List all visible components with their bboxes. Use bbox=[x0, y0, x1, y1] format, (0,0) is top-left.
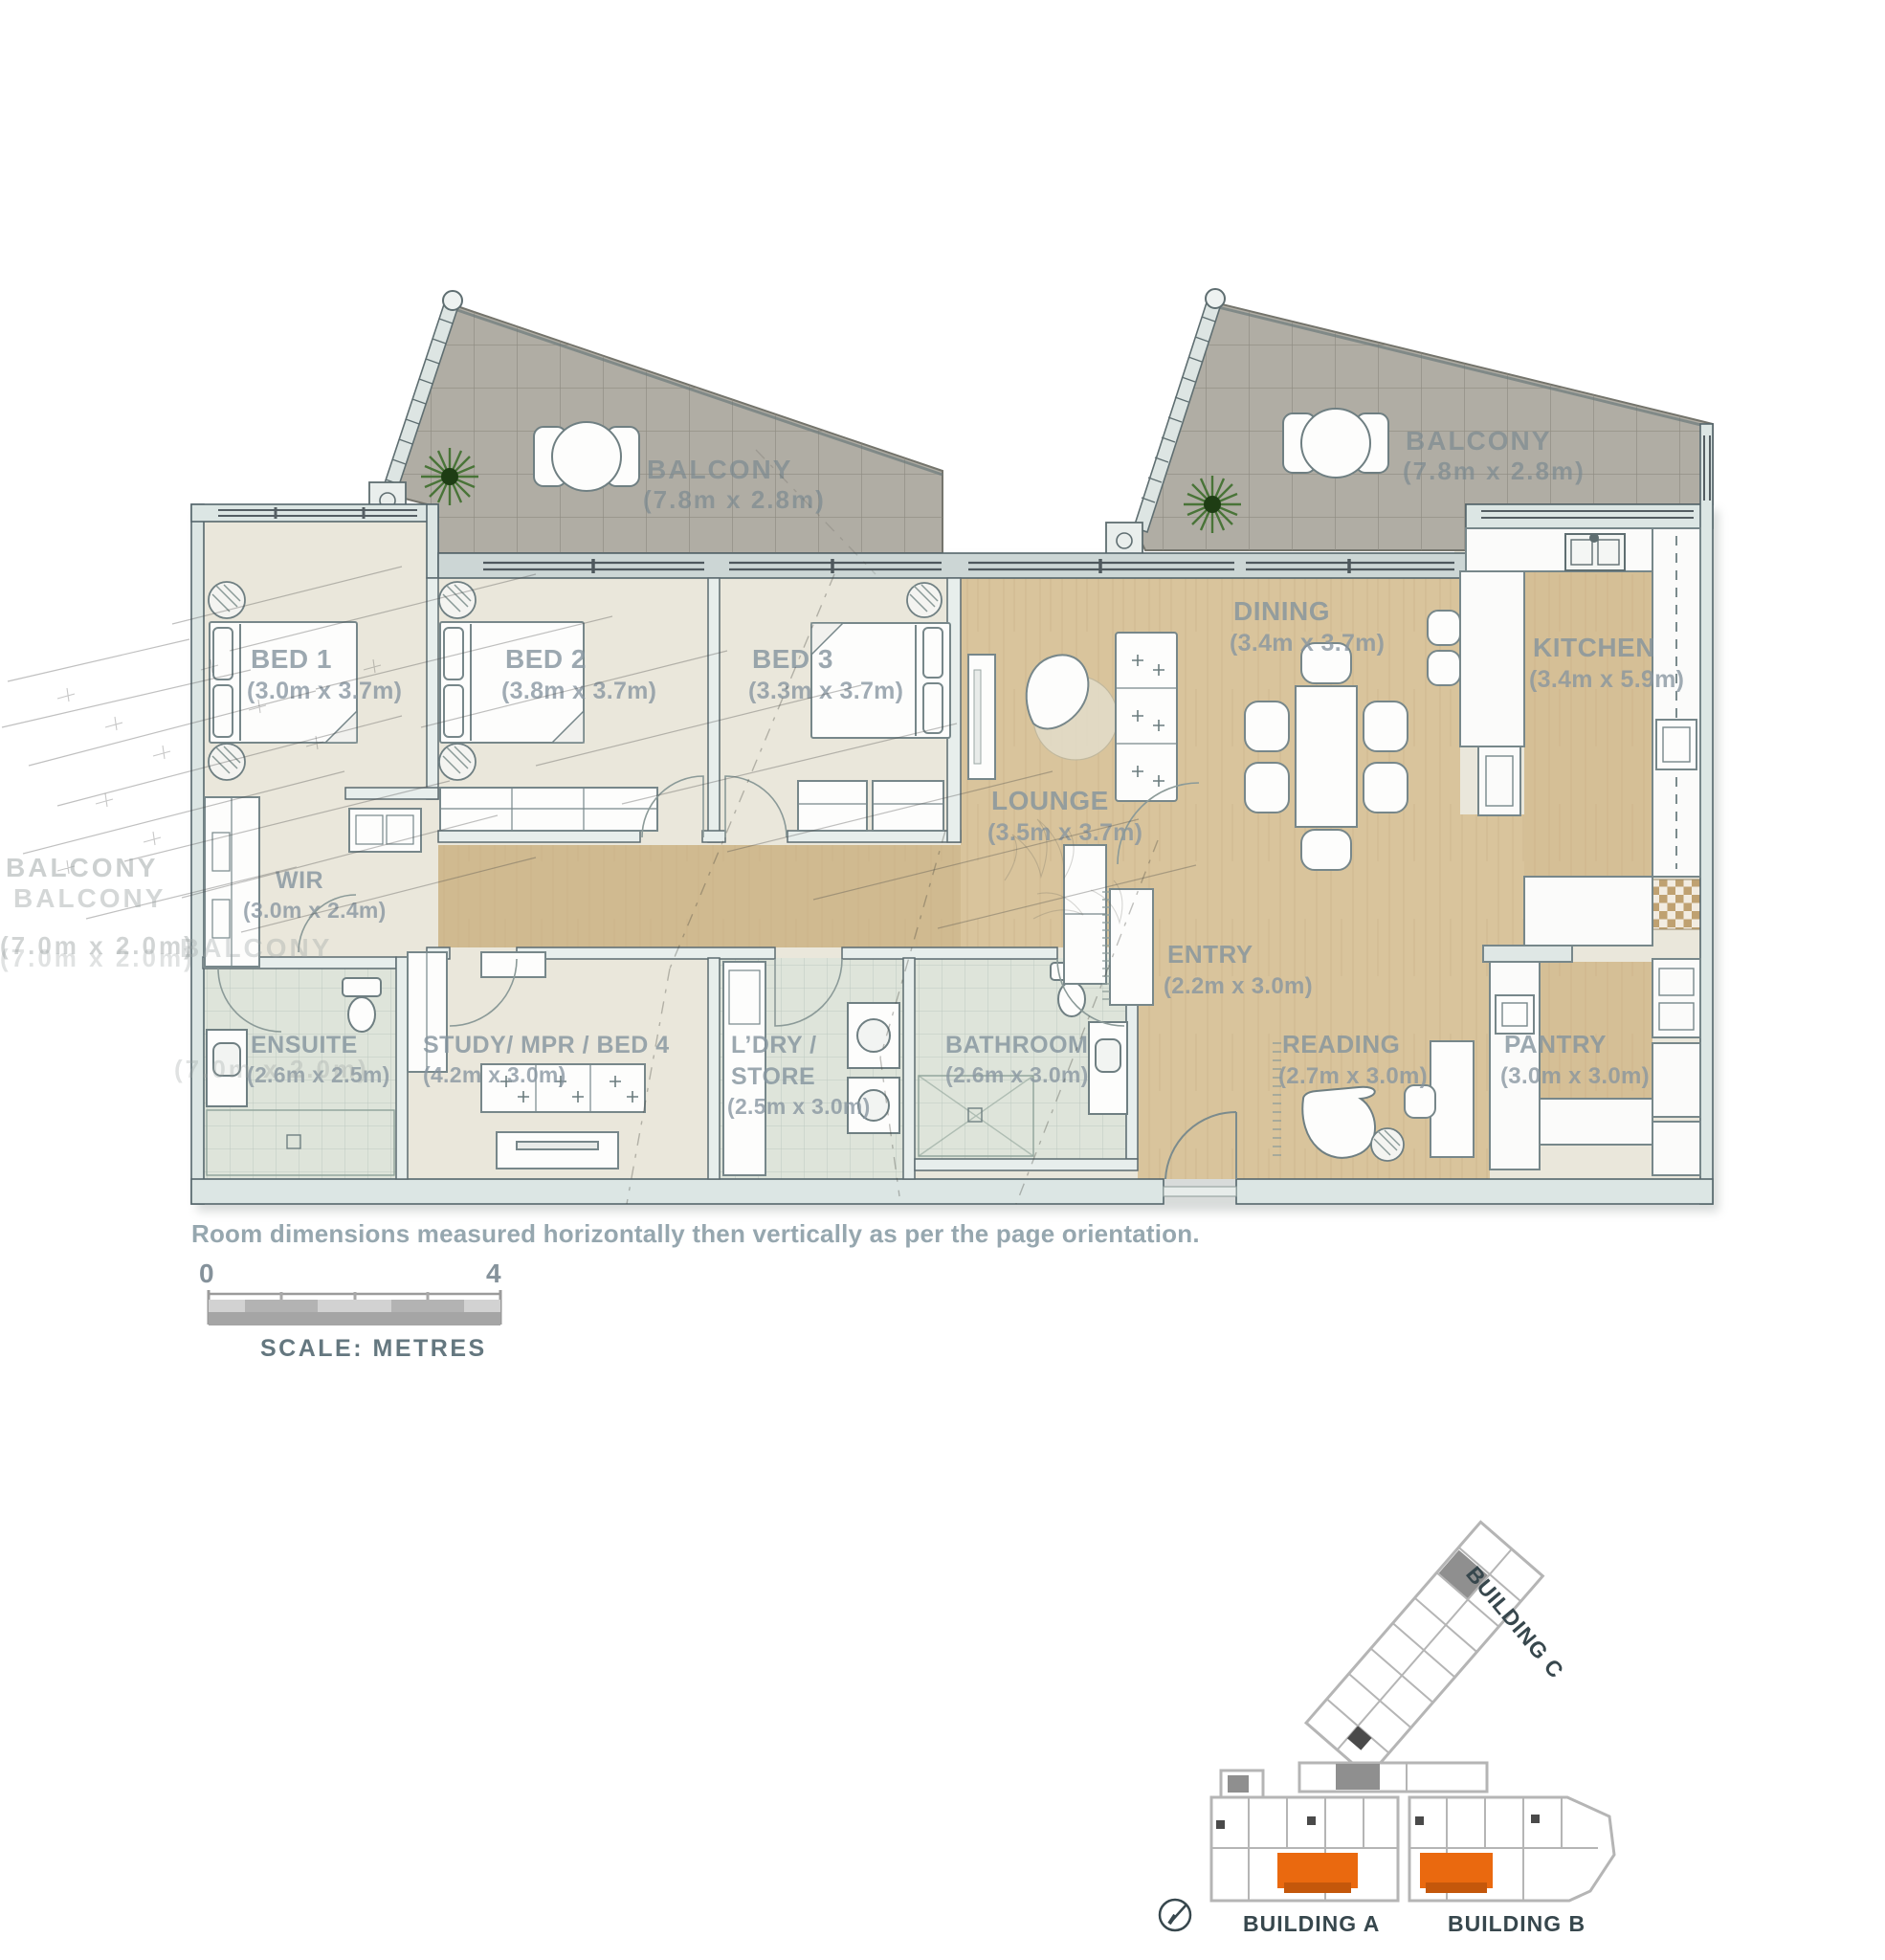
svg-text:LOUNGE: LOUNGE bbox=[991, 786, 1109, 815]
svg-text:ENTRY: ENTRY bbox=[1167, 940, 1253, 969]
svg-text:(3.4m x 3.7m): (3.4m x 3.7m) bbox=[1230, 630, 1385, 657]
svg-text:(2.2m x 3.0m): (2.2m x 3.0m) bbox=[1164, 973, 1313, 999]
svg-text:(3.8m x 3.7m): (3.8m x 3.7m) bbox=[501, 678, 656, 704]
svg-text:BED 2: BED 2 bbox=[505, 644, 587, 674]
svg-text:BATHROOM: BATHROOM bbox=[945, 1032, 1088, 1058]
svg-text:(3.4m x 5.9m): (3.4m x 5.9m) bbox=[1529, 666, 1684, 693]
svg-text:L’DRY /: L’DRY / bbox=[731, 1032, 817, 1058]
svg-text:BALCONY: BALCONY bbox=[13, 883, 166, 913]
svg-text:Room dimensions measured horiz: Room dimensions measured horizontally th… bbox=[191, 1219, 1200, 1248]
svg-text:BUILDING B: BUILDING B bbox=[1448, 1911, 1586, 1936]
svg-text:(4.2m x 3.0m): (4.2m x 3.0m) bbox=[423, 1062, 566, 1087]
svg-text:(2.5m x 3.0m): (2.5m x 3.0m) bbox=[727, 1094, 871, 1119]
svg-text:BALCONY: BALCONY bbox=[180, 933, 332, 963]
svg-text:BALCONY: BALCONY bbox=[1406, 426, 1551, 456]
svg-text:BED 3: BED 3 bbox=[752, 644, 833, 674]
svg-text:SCALE: METRES: SCALE: METRES bbox=[260, 1335, 487, 1362]
svg-text:(7.0m x 2.0m): (7.0m x 2.0m) bbox=[0, 944, 195, 972]
svg-text:(3.5m x 3.7m): (3.5m x 3.7m) bbox=[987, 819, 1142, 846]
svg-text:(3.0m x 3.0m): (3.0m x 3.0m) bbox=[1500, 1063, 1650, 1089]
svg-text:STORE: STORE bbox=[731, 1063, 815, 1090]
svg-text:(2.6m x 3.0m): (2.6m x 3.0m) bbox=[945, 1062, 1089, 1087]
svg-text:(7.8m x 2.8m): (7.8m x 2.8m) bbox=[1403, 457, 1586, 485]
svg-text:(7.0m x 2.0m): (7.0m x 2.0m) bbox=[174, 1055, 369, 1083]
svg-text:STUDY/ MPR / BED 4: STUDY/ MPR / BED 4 bbox=[423, 1032, 670, 1058]
svg-text:4: 4 bbox=[486, 1258, 501, 1288]
svg-text:(2.7m x 3.0m): (2.7m x 3.0m) bbox=[1278, 1063, 1428, 1089]
svg-text:BALCONY: BALCONY bbox=[647, 455, 792, 484]
svg-text:KITCHEN: KITCHEN bbox=[1533, 633, 1655, 662]
svg-text:BED 1: BED 1 bbox=[251, 644, 332, 674]
svg-text:0: 0 bbox=[199, 1258, 214, 1288]
svg-text:(3.0m x 3.7m): (3.0m x 3.7m) bbox=[247, 678, 402, 704]
svg-text:(7.8m x 2.8m): (7.8m x 2.8m) bbox=[643, 485, 826, 514]
svg-text:DINING: DINING bbox=[1233, 596, 1330, 626]
svg-text:(3.3m x 3.7m): (3.3m x 3.7m) bbox=[748, 678, 903, 704]
svg-text:BUILDING A: BUILDING A bbox=[1243, 1911, 1380, 1936]
svg-text:BALCONY: BALCONY bbox=[6, 853, 158, 882]
svg-text:PANTRY: PANTRY bbox=[1504, 1030, 1607, 1058]
svg-text:READING: READING bbox=[1282, 1030, 1400, 1058]
